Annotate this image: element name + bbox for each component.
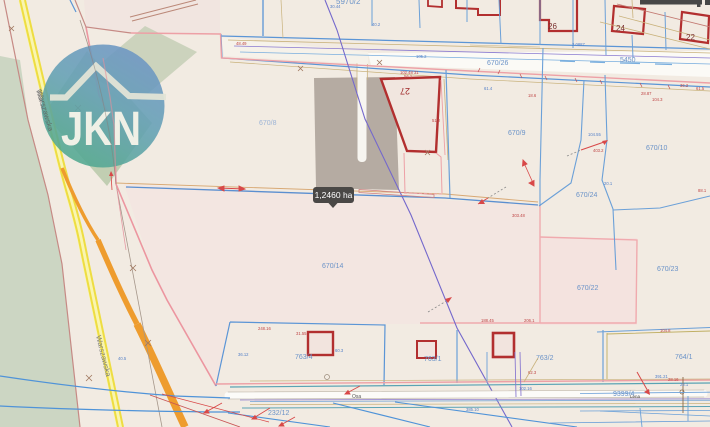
svg-text:763/2: 763/2	[536, 355, 554, 362]
svg-text:104.55: 104.55	[588, 132, 601, 137]
svg-text:670/10: 670/10	[646, 145, 668, 152]
svg-text:670/8: 670/8	[259, 120, 277, 127]
svg-text:Lena: Lena	[630, 394, 641, 399]
svg-text:5970/2: 5970/2	[336, 0, 361, 6]
svg-text:40.2: 40.2	[372, 22, 381, 27]
svg-text:105.2: 105.2	[416, 54, 427, 59]
svg-text:248.16: 248.16	[258, 326, 271, 331]
svg-text:36.12: 36.12	[238, 352, 249, 357]
svg-text:670/23: 670/23	[657, 266, 679, 273]
svg-text:61.4: 61.4	[484, 86, 493, 91]
svg-text:40.5: 40.5	[118, 356, 127, 361]
svg-text:670/26: 670/26	[487, 60, 509, 67]
svg-text:391.21: 391.21	[655, 374, 668, 379]
svg-text:48.49: 48.49	[236, 41, 247, 46]
svg-text:31.55: 31.55	[296, 331, 307, 336]
svg-text:670/24: 670/24	[576, 192, 598, 199]
svg-text:56.1: 56.1	[404, 74, 413, 79]
svg-text:26: 26	[548, 22, 557, 31]
svg-text:206.1: 206.1	[524, 318, 535, 323]
svg-text:36.2: 36.2	[680, 83, 689, 88]
svg-text:403.2: 403.2	[593, 148, 604, 153]
svg-text:5450: 5450	[620, 57, 636, 64]
svg-text:27: 27	[400, 86, 410, 96]
svg-text:24: 24	[616, 24, 625, 33]
svg-text:104.3: 104.3	[652, 97, 663, 102]
svg-text:232/12: 232/12	[268, 410, 290, 417]
svg-text:670/22: 670/22	[577, 285, 599, 292]
svg-text:28.16: 28.16	[668, 377, 679, 382]
svg-text:763/4: 763/4	[295, 354, 313, 361]
svg-text:670/9: 670/9	[508, 130, 526, 137]
svg-text:JKN: JKN	[61, 103, 141, 156]
svg-text:764/1: 764/1	[675, 354, 693, 361]
svg-text:670/14: 670/14	[322, 263, 344, 270]
svg-text:763/1: 763/1	[424, 356, 442, 363]
svg-text:385.10: 385.10	[466, 407, 479, 412]
svg-text:51.2: 51.2	[432, 118, 441, 123]
svg-text:2.0887: 2.0887	[572, 42, 585, 47]
svg-text:28.1: 28.1	[680, 382, 689, 387]
svg-text:18.6: 18.6	[528, 93, 537, 98]
svg-text:61.5: 61.5	[696, 86, 705, 91]
svg-text:188.45: 188.45	[481, 318, 494, 323]
svg-text:60.3: 60.3	[335, 348, 344, 353]
svg-text:Osa: Osa	[352, 394, 361, 400]
svg-text:28.87: 28.87	[641, 91, 652, 96]
svg-text:104.8: 104.8	[660, 328, 671, 333]
svg-text:20.1: 20.1	[604, 181, 613, 186]
svg-text:303.48: 303.48	[512, 213, 525, 218]
svg-text:88.1: 88.1	[698, 188, 707, 193]
svg-text:1,2460 ha: 1,2460 ha	[315, 190, 353, 200]
svg-text:22: 22	[686, 33, 695, 42]
